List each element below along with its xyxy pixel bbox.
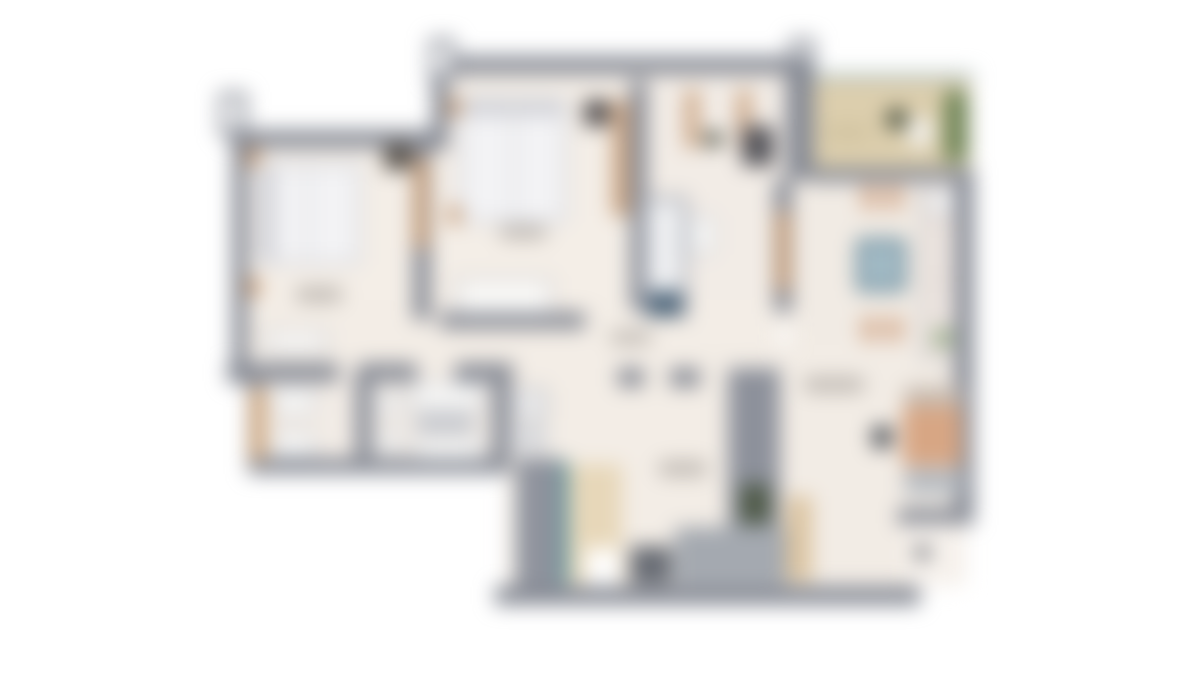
entrance-door-leaf: [630, 546, 672, 584]
bathroom-2-vanity: [412, 382, 482, 410]
bed-1-duvet: [262, 168, 356, 260]
wall-bedroom-2-bottom: [440, 312, 585, 329]
wall-hall-living-a: [618, 368, 644, 387]
dining-chair-top-a: [861, 184, 879, 210]
bathroom-1-toilet: [272, 387, 316, 415]
floorplan-image: [0, 0, 1200, 675]
media-unit-2-dark: [584, 100, 610, 126]
bathroom-2-tub: [414, 412, 476, 434]
toilet-shower-room: [688, 214, 716, 256]
wall-bathrooms-top-a: [227, 363, 339, 382]
wc-dark-dot: [704, 132, 722, 146]
wall-bathroom-2-right: [492, 370, 510, 470]
nightstand-2b: [448, 206, 461, 224]
balcony-chair: [908, 118, 932, 146]
dresser-2: [456, 278, 552, 314]
living-notch-floor: [904, 524, 964, 586]
bed-2-center-seam: [512, 102, 515, 218]
duct-shaft: [516, 458, 562, 588]
nightstand-1a: [246, 148, 260, 166]
bathroom-2-fixture-a: [376, 392, 402, 416]
dining-chair-top-b: [885, 184, 903, 210]
dining-table-blue-top: [863, 245, 899, 285]
bathroom-1-cabinet-wood: [250, 388, 266, 460]
bed-1-center-seam: [306, 168, 309, 260]
bedroom-2-label-smudge: [499, 225, 547, 239]
wall-living-bottom-right: [898, 508, 974, 525]
desk-dark: [742, 126, 774, 166]
sofa-main: [902, 406, 962, 466]
stairs-blob: [675, 527, 787, 585]
wardrobe-1-dark: [384, 144, 412, 170]
sofa-chaise-section: [904, 468, 962, 494]
wardrobe-2-wood: [612, 100, 630, 216]
kitchen-sink: [928, 190, 954, 214]
wall-bottom-main: [495, 586, 920, 605]
coffee-table-dark: [872, 426, 892, 448]
entry-label-smudge: [658, 461, 708, 476]
living-cabinet-wood: [786, 496, 812, 582]
bathroom-1-sink: [272, 432, 316, 458]
hall-label-smudge: [610, 331, 652, 344]
wall-bathrooms-bottom: [248, 458, 510, 474]
entry-closet-green: [740, 484, 770, 524]
floorplan-page: [0, 0, 1200, 675]
wall-left-exterior: [232, 132, 248, 384]
nightstand-2a: [448, 98, 461, 116]
sofa-back-section: [904, 386, 962, 406]
dresser-1: [265, 330, 327, 352]
balcony-plant-strip: [944, 90, 968, 162]
living-dark-dot: [916, 546, 929, 559]
dining-chair-bottom-a: [861, 316, 879, 342]
door-leaf-shower-room: [776, 212, 790, 290]
balcony-label-smudge: [826, 126, 870, 139]
bedroom-1-label-smudge: [295, 287, 343, 302]
shower-tray: [648, 202, 682, 290]
living-label-smudge: [803, 377, 865, 392]
wall-block-balcony-left: [786, 56, 814, 180]
washer: [512, 388, 548, 420]
wall-bathroom-divider: [355, 370, 372, 470]
bed-1-pillow-band: [262, 168, 275, 260]
kitchen-cabinet-b: [928, 286, 954, 322]
shower-base-dark: [648, 292, 682, 316]
kitchen-cabinet-a: [928, 230, 954, 272]
dryer: [512, 424, 548, 454]
bathroom-2-sink: [415, 438, 481, 460]
balcony-plant-pot: [886, 108, 908, 130]
kitchen-plant-dot: [932, 328, 954, 348]
wall-top-bedroom-2: [432, 56, 814, 74]
door-1-leaf: [414, 158, 428, 248]
bathroom-2-fixture-b: [376, 430, 402, 454]
nightstand-1b: [246, 278, 260, 296]
entry-door-gap: [586, 548, 618, 586]
entry-glass-door-teal: [560, 462, 568, 584]
door-frame-shower-a: [686, 90, 698, 148]
wall-right-kitchen: [954, 168, 974, 388]
wall-hall-living-b: [670, 368, 700, 387]
wall-post-top-mid-cap: [435, 44, 449, 74]
wall-post-top-left-cap: [225, 98, 240, 129]
dining-chair-bottom-b: [885, 316, 903, 342]
